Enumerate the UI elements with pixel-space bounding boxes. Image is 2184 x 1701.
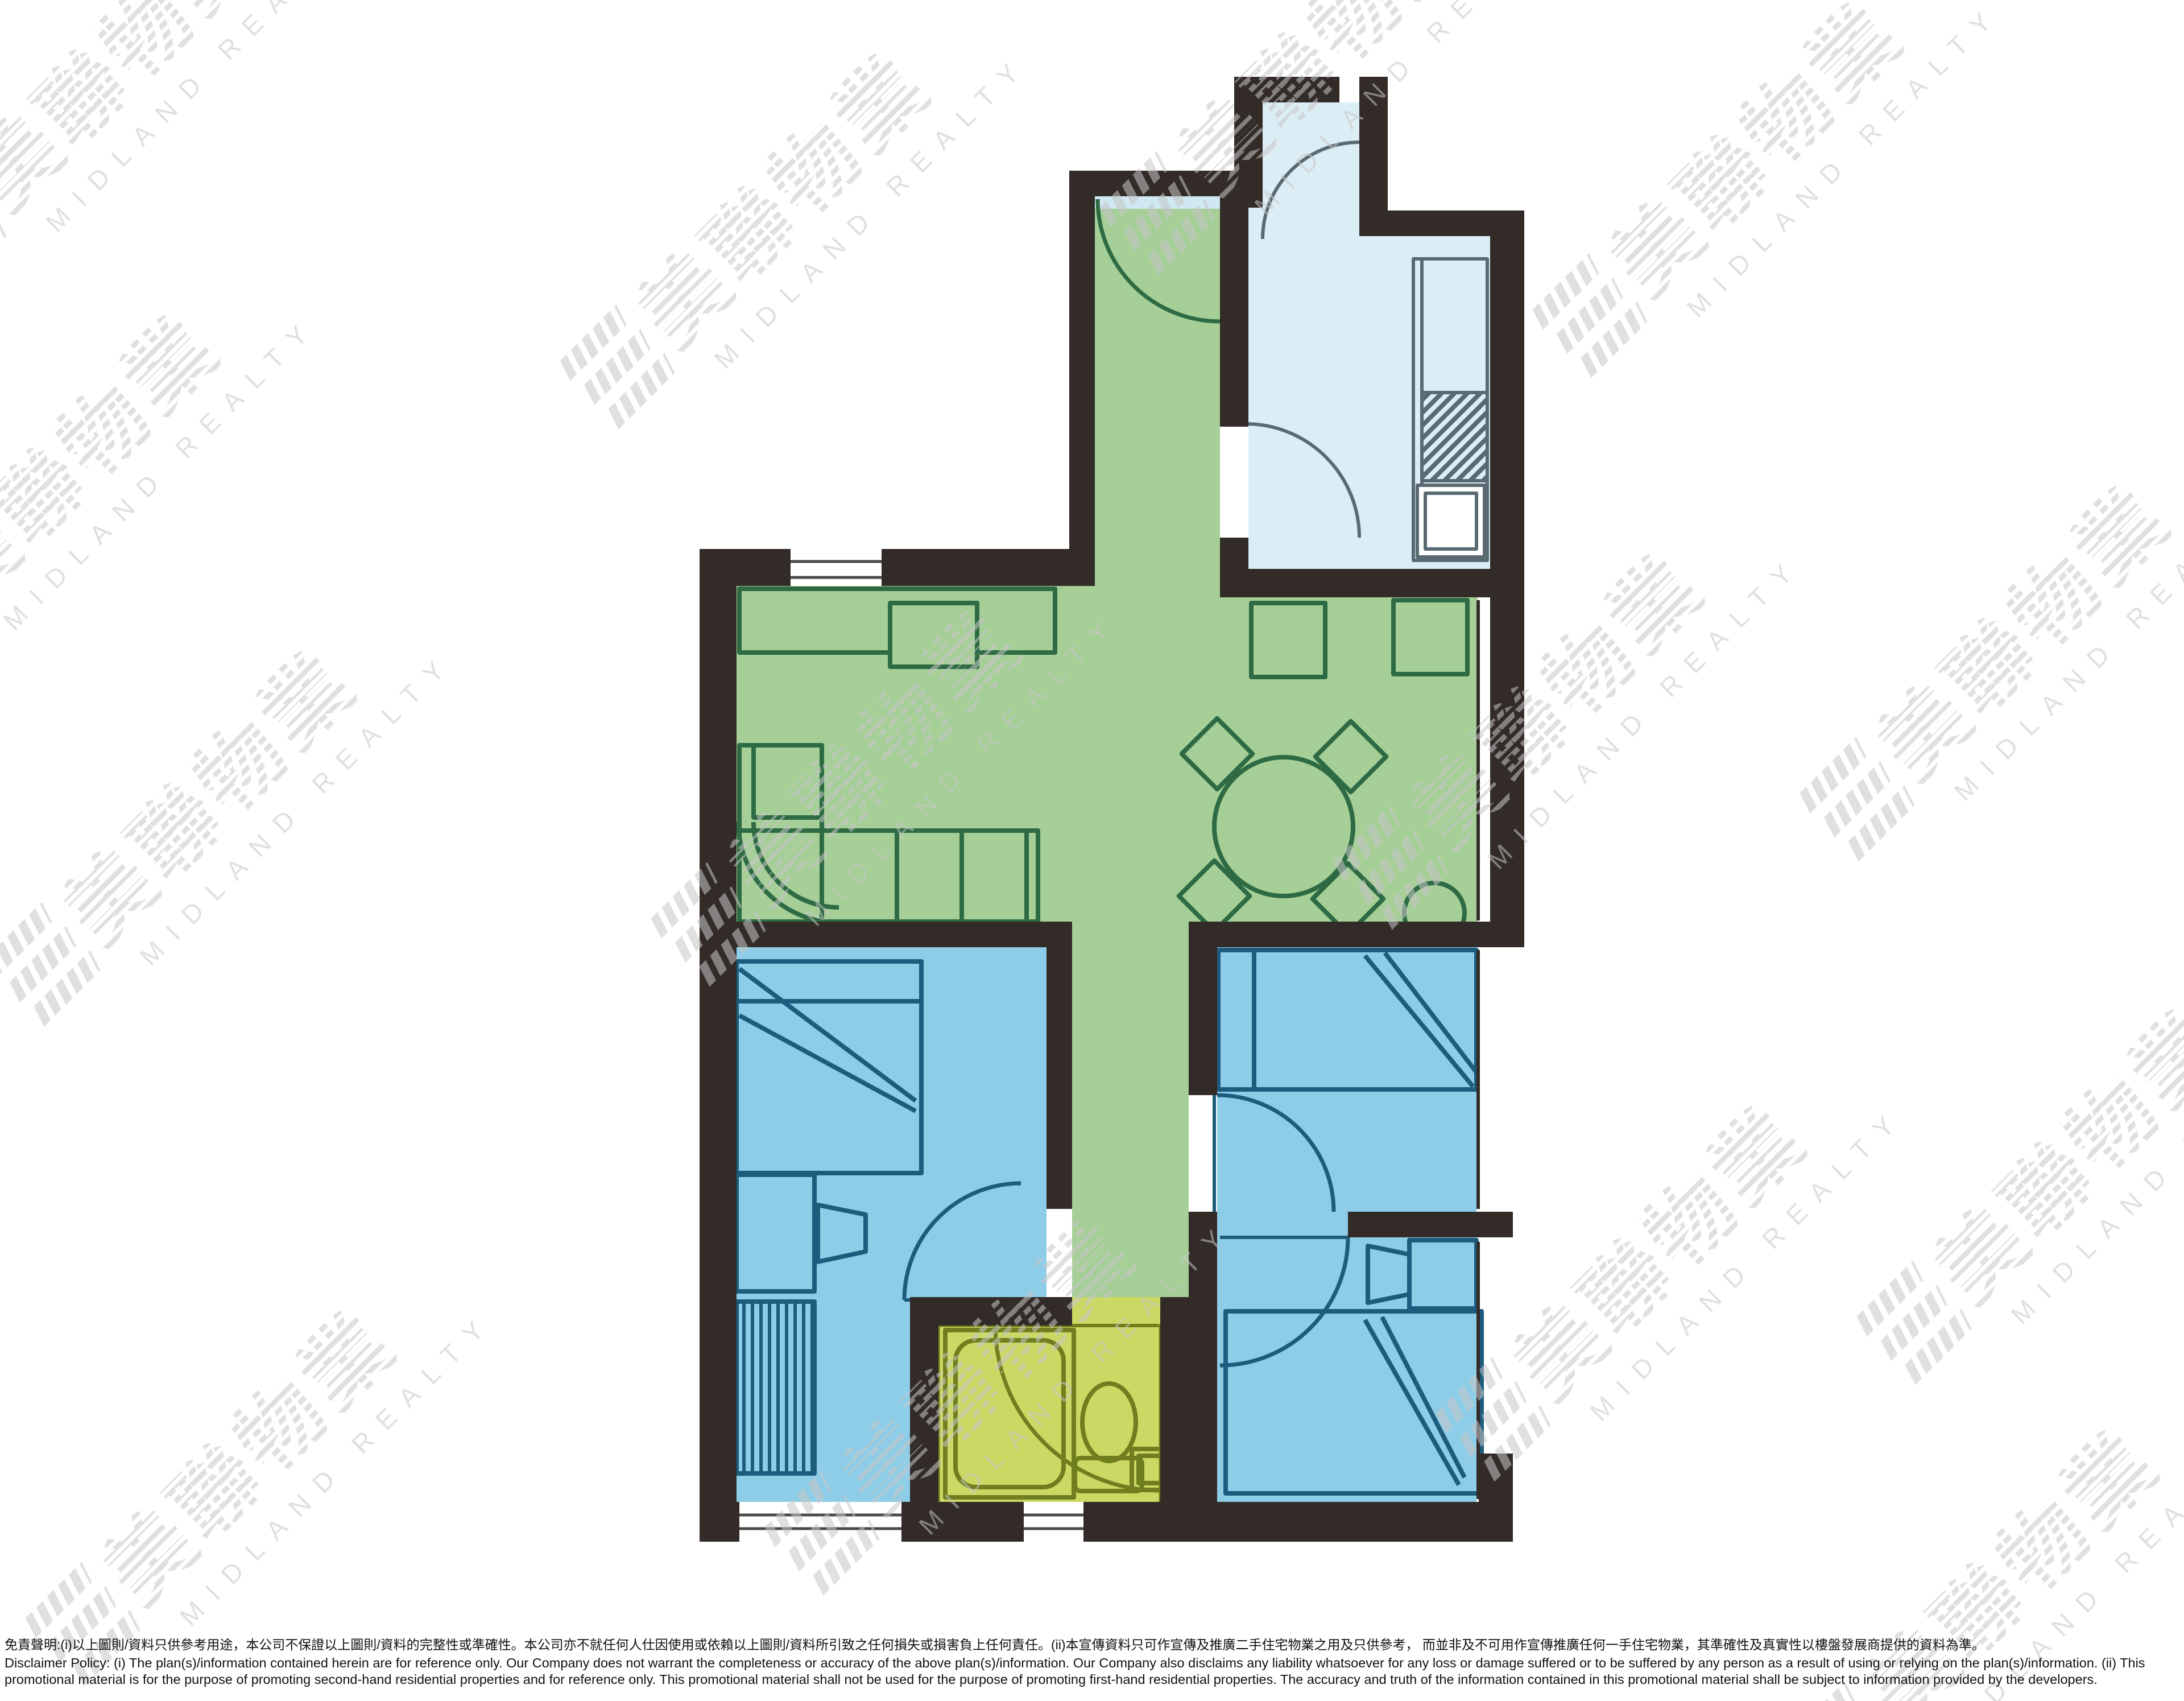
watermark-en-text: MIDLAND REALTY [1482, 548, 1809, 875]
watermark-cjk-text: 美聯物業 [1597, 0, 1919, 311]
wall [1359, 77, 1388, 236]
wall [1479, 1212, 1513, 1237]
kitchen-sink [1417, 485, 1484, 557]
wall [700, 549, 737, 1542]
inner-corridor [1072, 922, 1189, 1297]
bathroom [938, 1326, 1160, 1505]
floor-plan-page: 美聯物業 MIDLAND REALTY 美聯物業 MIDLAND REALTY … [0, 0, 2184, 1701]
midland-watermark: 美聯物業 MIDLAND REALTY [1854, 933, 2184, 1411]
stove [1422, 393, 1487, 481]
wall [1046, 947, 1072, 1209]
watermark-en-text: MIDLAND REALTY [1584, 1100, 1911, 1427]
midland-logo-icon [0, 905, 103, 1025]
wardrobe [737, 1302, 814, 1473]
entry-corridor [1095, 196, 1220, 586]
living-dining-area [737, 586, 1478, 922]
wall [1234, 77, 1339, 102]
watermark-cjk-text: 美聯物業 [50, 637, 372, 959]
window [1024, 1502, 1083, 1542]
wall [1069, 171, 1095, 549]
midland-watermark: 美聯物業 MIDLAND REALTY [1797, 410, 2184, 887]
watermark-cjk-text: 美聯物業 [0, 301, 236, 623]
wall [1220, 196, 1248, 427]
wall [910, 1297, 938, 1505]
watermark-en-text: MIDLAND REALTY [173, 1304, 500, 1632]
bathroom-entry [1072, 1297, 1160, 1326]
disclaimer-english: Disclaimer Policy: (i) The plan(s)/infor… [5, 1655, 2181, 1688]
wall [1348, 1212, 1479, 1237]
watermark-en-text: MIDLAND REALTY [1681, 0, 2008, 323]
watermark-en-text: MIDLAND REALTY [40, 0, 367, 238]
window [739, 1502, 901, 1542]
wall [1160, 1297, 1189, 1505]
wall [700, 922, 1072, 947]
midland-watermark: 美聯物業 MIDLAND REALTY [0, 239, 324, 717]
wall [901, 1502, 1024, 1542]
room-fills [737, 102, 1490, 1505]
wall [1248, 569, 1524, 597]
tv [890, 603, 977, 667]
watermark-cjk-text: 美聯物業 [1921, 995, 2184, 1317]
midland-watermark: 美聯物業 MIDLAND REALTY [0, 0, 367, 319]
wall [1189, 947, 1217, 1095]
watermark-cjk-text: 美聯物業 [1864, 472, 2184, 794]
watermark-en-text: MIDLAND REALTY [0, 309, 324, 636]
midland-watermark: 美聯物業 MIDLAND REALTY [23, 1235, 500, 1701]
disclaimer: 免責聲明:(i)以上圖則/資料只供參考用途，本公司不保證以上圖則/資料的完整性或… [5, 1636, 2181, 1688]
bedroom-doorway-strip [1217, 1212, 1348, 1237]
midland-watermark: 美聯物業 MIDLAND REALTY [0, 575, 461, 1052]
window-glazing [1476, 950, 1480, 1209]
watermark-en-text: MIDLAND REALTY [134, 645, 461, 972]
watermark-cjk-text: 美聯物業 [90, 1297, 412, 1619]
window-glazing [1476, 600, 1480, 920]
window-glazing [1476, 1242, 1480, 1499]
watermark-en-text: MIDLAND REALTY [2005, 1003, 2184, 1330]
midland-logo-icon [1797, 740, 1917, 860]
disclaimer-chinese: 免責聲明:(i)以上圖則/資料只供參考用途，本公司不保證以上圖則/資料的完整性或… [5, 1636, 2181, 1653]
bedroom-right-bottom [1217, 1237, 1476, 1502]
midland-logo-icon [1854, 1263, 1974, 1383]
watermark-cjk-text: 美聯物業 [1500, 1092, 1822, 1414]
window [791, 549, 882, 586]
midland-logo-icon [1530, 256, 1650, 376]
wall [1479, 1454, 1513, 1505]
watermark-cjk-text: 美聯物業 [0, 0, 279, 225]
wall [882, 549, 1095, 586]
wall [1189, 922, 1524, 947]
midland-logo-icon [0, 171, 9, 291]
wall [700, 1502, 739, 1542]
midland-logo-icon [557, 307, 677, 427]
wall [1189, 1212, 1217, 1502]
wall [1220, 538, 1248, 597]
floor-plan [700, 77, 1524, 1542]
entry-threshold [1095, 196, 1220, 209]
midland-watermark: 美聯物業 MIDLAND REALTY [1530, 0, 2008, 404]
watermark-en-text: MIDLAND REALTY [1948, 480, 2184, 807]
wall [1083, 1502, 1513, 1542]
